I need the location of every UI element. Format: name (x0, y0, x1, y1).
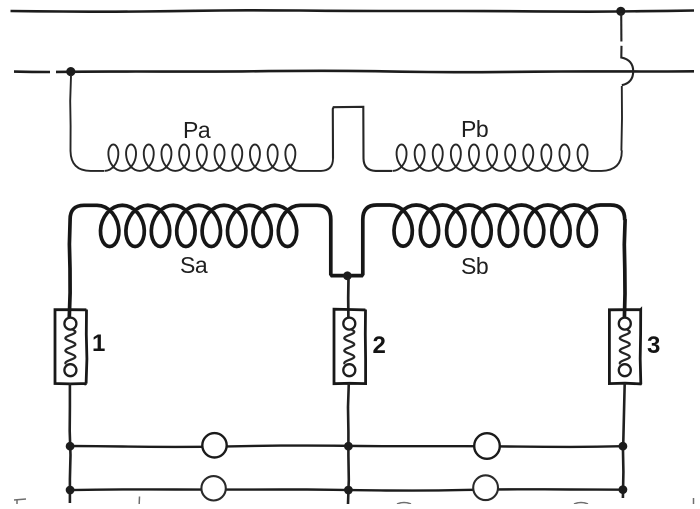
svg-text:Sb: Sb (461, 253, 488, 279)
svg-text:Sa: Sa (180, 252, 208, 278)
svg-text:Pb: Pb (461, 116, 488, 142)
svg-text:1: 1 (92, 330, 105, 357)
svg-text:3: 3 (647, 332, 660, 359)
svg-text:Pa: Pa (183, 117, 211, 143)
svg-text:2: 2 (373, 332, 386, 359)
